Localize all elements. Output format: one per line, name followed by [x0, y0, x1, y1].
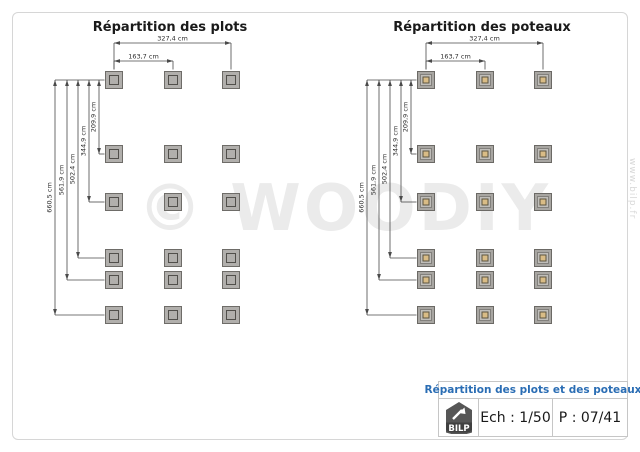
bilp-logo: BILP: [439, 399, 479, 436]
title-block-body: BILP Ech : 1/50 P : 07/41: [439, 399, 627, 436]
post-marker-core: [482, 277, 488, 283]
post-marker-core: [482, 151, 488, 157]
dimension-arrowhead: [365, 309, 369, 315]
plot-marker: [165, 194, 182, 211]
dimension-label: 344,9 cm: [80, 126, 88, 157]
post-diagram-canvas: 327,4 cm163,7 cm660,5 cm561,9 cm502,4 cm…: [352, 36, 612, 336]
plot-marker: [165, 146, 182, 163]
plot-marker: [223, 194, 240, 211]
dimension-arrowhead: [76, 252, 80, 258]
poteaux-diagram-title: Répartition des poteaux: [352, 20, 612, 35]
dimension-label: 327,4 cm: [157, 36, 188, 43]
bilp-logo-icon: BILP: [443, 401, 475, 435]
dimension-arrowhead: [377, 80, 381, 86]
plot-marker: [165, 307, 182, 324]
dimension-arrowhead: [225, 41, 231, 45]
website-watermark: www.bilp.fr: [627, 158, 637, 219]
dimension-arrowhead: [114, 59, 120, 63]
dimension-arrowhead: [377, 274, 381, 280]
dimension-arrowhead: [388, 80, 392, 86]
dimension-arrowhead: [365, 80, 369, 86]
post-marker-core: [540, 77, 546, 83]
dimension-arrowhead: [87, 80, 91, 86]
title-block-heading: Répartition des plots et des poteaux: [439, 382, 627, 399]
post-marker-core: [423, 277, 429, 283]
dimension-arrowhead: [97, 148, 101, 154]
dimension-arrowhead: [426, 59, 432, 63]
plot-marker: [223, 272, 240, 289]
page-number-value: P : 07/41: [553, 399, 627, 436]
plot-marker: [165, 250, 182, 267]
plot-marker: [165, 272, 182, 289]
dimension-label: 660,5 cm: [358, 182, 366, 213]
post-marker-core: [540, 277, 546, 283]
post-marker-core: [423, 77, 429, 83]
plot-marker: [106, 72, 123, 89]
plot-marker: [223, 250, 240, 267]
dimension-label: 209,9 cm: [90, 102, 98, 133]
post-marker-core: [423, 312, 429, 318]
dimension-arrowhead: [87, 196, 91, 202]
plots-diagram: 327,4 cm163,7 cm660,5 cm561,9 cm502,4 cm…: [40, 36, 300, 336]
post-marker-core: [540, 151, 546, 157]
dimension-arrowhead: [409, 80, 413, 86]
plot-marker: [106, 307, 123, 324]
post-marker-core: [540, 199, 546, 205]
dimension-arrowhead: [399, 196, 403, 202]
dimension-arrowhead: [114, 41, 120, 45]
post-marker-core: [423, 255, 429, 261]
svg-text:BILP: BILP: [448, 424, 469, 434]
plot-marker: [106, 272, 123, 289]
dimension-label: 163,7 cm: [128, 53, 159, 61]
dimension-label: 344,9 cm: [392, 126, 400, 157]
plot-marker: [223, 146, 240, 163]
dimension-label: 502,4 cm: [69, 154, 77, 185]
plot-marker: [223, 72, 240, 89]
dimension-arrowhead: [97, 80, 101, 86]
plot-marker: [106, 146, 123, 163]
dimension-arrowhead: [65, 80, 69, 86]
dimension-label: 502,4 cm: [381, 154, 389, 185]
scale-value: Ech : 1/50: [479, 399, 553, 436]
plot-marker: [106, 250, 123, 267]
dimension-arrowhead: [409, 148, 413, 154]
post-marker-core: [540, 312, 546, 318]
plot-marker: [106, 194, 123, 211]
post-marker-core: [540, 255, 546, 261]
post-marker-core: [482, 77, 488, 83]
plot-diagram-canvas: 327,4 cm163,7 cm660,5 cm561,9 cm502,4 cm…: [40, 36, 300, 336]
dimension-label: 660,5 cm: [46, 182, 54, 213]
dimension-arrowhead: [53, 80, 57, 86]
dimension-label: 209,9 cm: [402, 102, 410, 133]
dimension-label: 561,9 cm: [58, 165, 66, 196]
poteaux-diagram: 327,4 cm163,7 cm660,5 cm561,9 cm502,4 cm…: [352, 36, 612, 336]
dimension-arrowhead: [167, 59, 173, 63]
post-marker-core: [482, 312, 488, 318]
dimension-arrowhead: [479, 59, 485, 63]
post-marker-core: [423, 199, 429, 205]
dimension-label: 561,9 cm: [370, 165, 378, 196]
drawing-title-block: Répartition des plots et des poteaux BIL…: [438, 381, 628, 437]
dimension-arrowhead: [537, 41, 543, 45]
dimension-arrowhead: [76, 80, 80, 86]
dimension-arrowhead: [65, 274, 69, 280]
plots-diagram-title: Répartition des plots: [40, 20, 300, 35]
dimension-arrowhead: [388, 252, 392, 258]
plot-marker: [223, 307, 240, 324]
dimension-label: 327,4 cm: [469, 36, 500, 43]
post-marker-core: [482, 255, 488, 261]
dimension-arrowhead: [426, 41, 432, 45]
plot-marker: [165, 72, 182, 89]
dimension-label: 163,7 cm: [440, 53, 471, 61]
dimension-arrowhead: [53, 309, 57, 315]
post-marker-core: [423, 151, 429, 157]
post-marker-core: [482, 199, 488, 205]
dimension-arrowhead: [399, 80, 403, 86]
